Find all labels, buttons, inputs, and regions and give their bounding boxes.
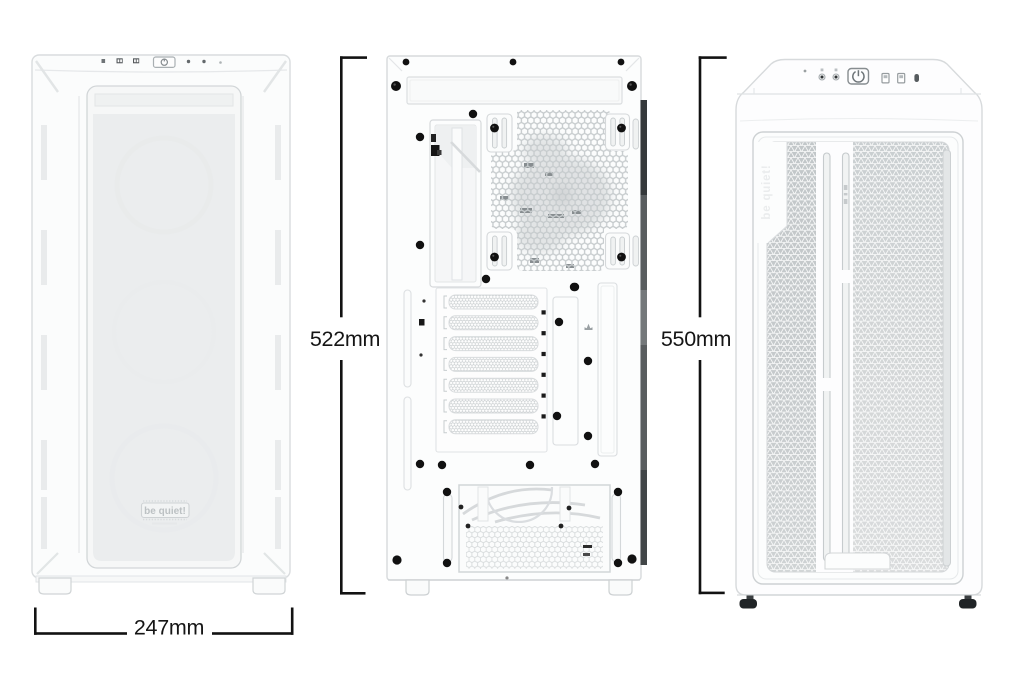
svg-text:550mm: 550mm [661, 327, 731, 351]
svg-text:be quiet!: be quiet! [761, 164, 773, 219]
svg-text:be quiet!: be quiet! [144, 506, 186, 517]
svg-text:522mm: 522mm [310, 327, 380, 351]
svg-text:247mm: 247mm [134, 616, 204, 640]
